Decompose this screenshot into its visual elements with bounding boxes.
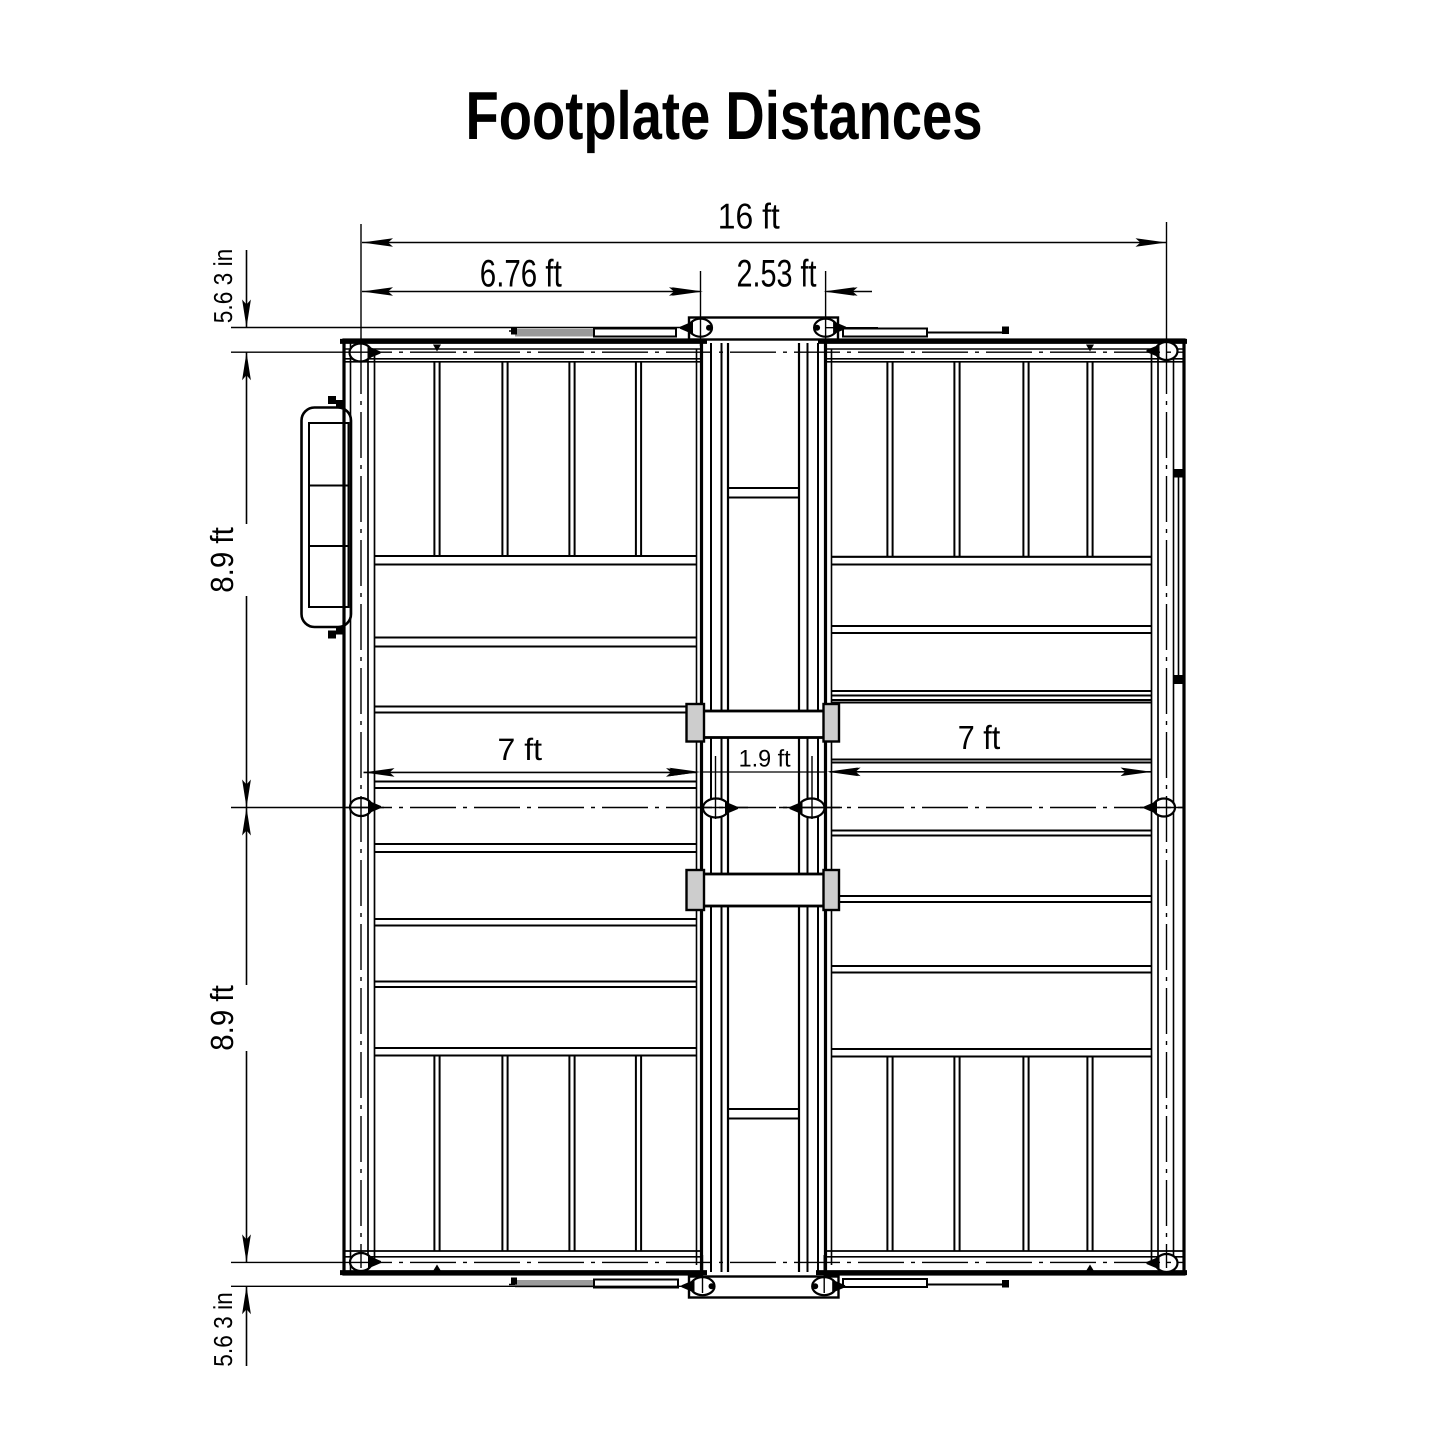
svg-text:1.9 ft: 1.9 ft xyxy=(739,746,791,773)
svg-text:7 ft: 7 ft xyxy=(958,720,1001,757)
svg-text:8.9 ft: 8.9 ft xyxy=(204,985,240,1051)
svg-text:6.76 ft: 6.76 ft xyxy=(480,253,562,296)
svg-text:2.53 ft: 2.53 ft xyxy=(737,253,817,296)
svg-text:8.9 ft: 8.9 ft xyxy=(204,527,240,593)
svg-text:Footplate Distances: Footplate Distances xyxy=(466,78,983,154)
svg-text:7 ft: 7 ft xyxy=(498,732,543,767)
svg-text:5.6 3 in: 5.6 3 in xyxy=(208,249,238,324)
svg-text:16 ft: 16 ft xyxy=(718,196,780,237)
svg-text:5.6 3 in: 5.6 3 in xyxy=(208,1292,238,1367)
